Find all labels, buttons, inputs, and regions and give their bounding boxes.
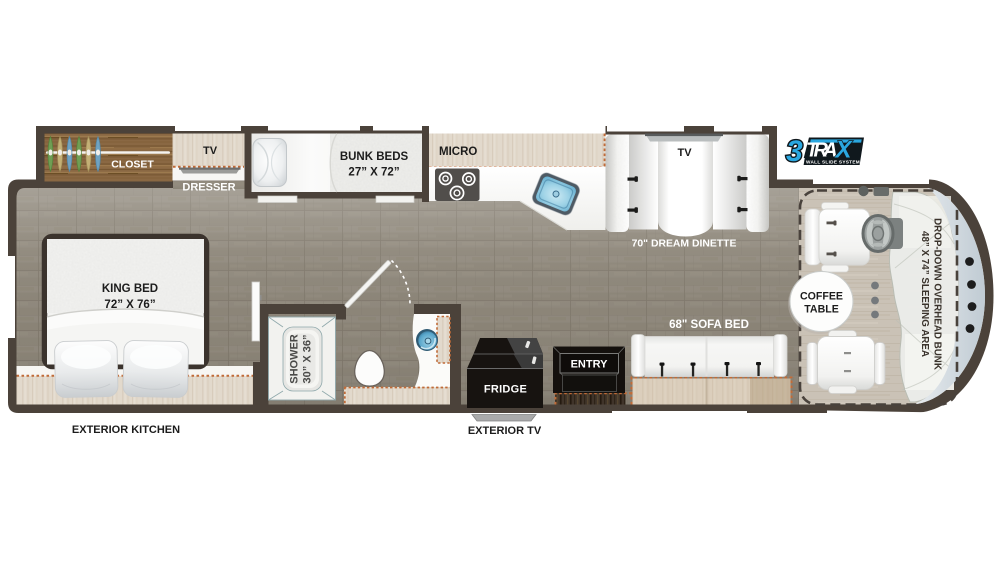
svg-text:72” X 76”: 72” X 76” xyxy=(104,299,155,311)
svg-text:FRIDGE: FRIDGE xyxy=(484,384,527,396)
svg-text:TV: TV xyxy=(677,147,692,159)
svg-text:30” X 36”: 30” X 36” xyxy=(302,335,314,384)
svg-text:ENTRY: ENTRY xyxy=(571,359,609,371)
svg-text:KING BED: KING BED xyxy=(102,283,158,295)
svg-text:DROP-DOWN OVERHEAD BUNK: DROP-DOWN OVERHEAD BUNK xyxy=(932,218,943,370)
svg-text:EXTERIOR TV: EXTERIOR TV xyxy=(468,425,542,437)
svg-text:CLOSET: CLOSET xyxy=(111,158,154,170)
svg-text:68" SOFA BED: 68" SOFA BED xyxy=(669,319,749,331)
svg-text:TABLE: TABLE xyxy=(804,304,839,316)
svg-text:70" DREAM DINETTE: 70" DREAM DINETTE xyxy=(632,239,737,250)
svg-text:WALL SLIDE SYSTEM: WALL SLIDE SYSTEM xyxy=(806,160,860,165)
svg-text:BUNK BEDS: BUNK BEDS xyxy=(340,151,409,163)
svg-text:MICRO: MICRO xyxy=(439,146,477,158)
svg-text:COFFEE: COFFEE xyxy=(800,291,843,303)
svg-text:TRA: TRA xyxy=(806,140,837,162)
svg-text:48” X 74” SLEEPING AREA: 48” X 74” SLEEPING AREA xyxy=(919,231,930,357)
svg-text:TV: TV xyxy=(203,145,218,157)
svg-text:3: 3 xyxy=(786,135,803,168)
svg-text:27” X 72”: 27” X 72” xyxy=(348,167,399,179)
svg-text:DRESSER: DRESSER xyxy=(182,182,235,194)
svg-text:SHOWER: SHOWER xyxy=(289,334,301,384)
svg-text:EXTERIOR KITCHEN: EXTERIOR KITCHEN xyxy=(72,424,180,436)
